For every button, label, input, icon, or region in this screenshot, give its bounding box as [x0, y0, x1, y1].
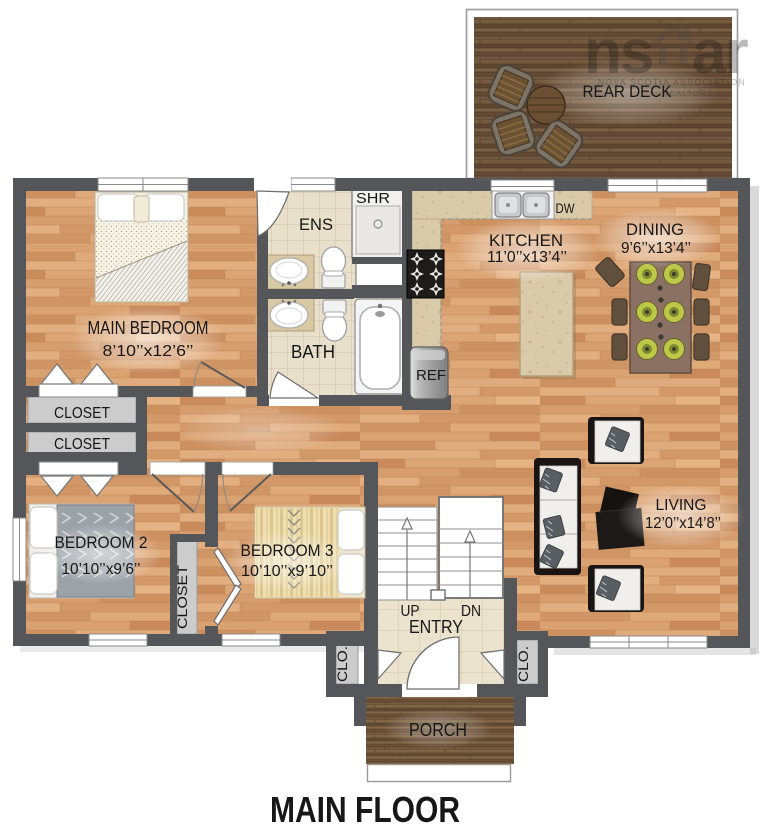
svg-text:11’0’’x13’4’’: 11’0’’x13’4’’ — [487, 249, 567, 266]
svg-text:CLOSET: CLOSET — [54, 436, 110, 453]
svg-text:PORCH: PORCH — [409, 720, 467, 740]
svg-text:MAIN BEDROOM: MAIN BEDROOM — [88, 318, 209, 338]
svg-text:SHR: SHR — [356, 190, 390, 207]
svg-text:ENS: ENS — [299, 215, 333, 234]
svg-text:10’10’’x9’6’’: 10’10’’x9’6’’ — [62, 561, 141, 578]
svg-text:9’6’’x13’4’’: 9’6’’x13’4’’ — [621, 240, 691, 257]
svg-text:BATH: BATH — [291, 342, 335, 362]
svg-text:8’10’’x12’6’’: 8’10’’x12’6’’ — [103, 343, 194, 360]
svg-text:REF: REF — [416, 367, 446, 384]
svg-text:CLO.: CLO. — [335, 646, 350, 682]
svg-text:MAIN FLOOR: MAIN FLOOR — [270, 789, 460, 830]
svg-text:BEDROOM 2: BEDROOM 2 — [55, 533, 148, 552]
svg-text:DN: DN — [461, 603, 481, 620]
svg-text:BEDROOM 3: BEDROOM 3 — [241, 541, 334, 560]
svg-text:10’10’’x9’10’’: 10’10’’x9’10’’ — [241, 563, 333, 580]
svg-text:CLO.: CLO. — [516, 646, 531, 682]
svg-text:KITCHEN: KITCHEN — [489, 231, 563, 250]
svg-text:DW: DW — [556, 200, 576, 216]
svg-text:REAR DECK: REAR DECK — [583, 82, 673, 101]
svg-text:DINING: DINING — [626, 220, 684, 239]
svg-text:CLOSET: CLOSET — [54, 405, 110, 422]
svg-text:12’0’’x14’8’’: 12’0’’x14’8’’ — [645, 515, 721, 532]
svg-text:LIVING: LIVING — [656, 497, 707, 514]
svg-text:CLOSET: CLOSET — [174, 564, 190, 629]
svg-text:ENTRY: ENTRY — [409, 617, 463, 637]
